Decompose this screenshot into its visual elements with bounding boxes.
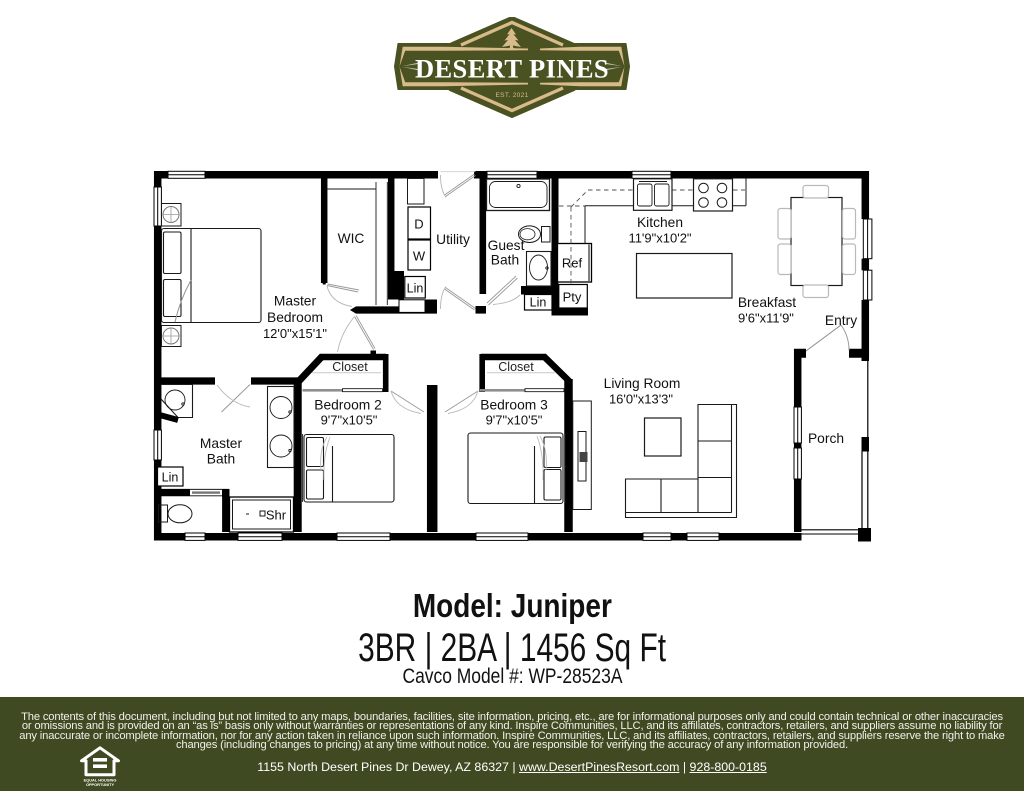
svg-text:11'9"x10'2": 11'9"x10'2": [628, 231, 691, 246]
svg-text:Closet: Closet: [332, 360, 368, 374]
svg-text:D: D: [414, 217, 423, 232]
svg-text:Lin: Lin: [407, 282, 424, 296]
svg-text:9'6"x11'9": 9'6"x11'9": [738, 311, 794, 326]
svg-text:Bedroom: Bedroom: [267, 310, 323, 325]
svg-text:Utility: Utility: [436, 232, 470, 247]
svg-text:EST. 2021: EST. 2021: [495, 92, 528, 99]
svg-text:Bath: Bath: [491, 253, 519, 268]
svg-text:DESERT PINES: DESERT PINES: [415, 54, 609, 84]
svg-text:WIC: WIC: [338, 231, 365, 246]
svg-text:Shr: Shr: [266, 508, 287, 523]
svg-text:Closet: Closet: [498, 360, 534, 374]
svg-text:Breakfast: Breakfast: [738, 295, 796, 310]
svg-text:Porch: Porch: [808, 431, 844, 446]
svg-text:Guest: Guest: [488, 238, 525, 253]
svg-text:Ref: Ref: [562, 256, 583, 271]
svg-text:9'7"x10'5": 9'7"x10'5": [321, 413, 378, 428]
svg-text:Bath: Bath: [207, 452, 235, 467]
svg-text:9'7"x10'5": 9'7"x10'5": [486, 413, 543, 428]
svg-text:Pty: Pty: [563, 290, 582, 305]
svg-text:Lin: Lin: [162, 471, 179, 485]
svg-text:12'0"x15'1": 12'0"x15'1": [263, 326, 327, 341]
svg-text:Master: Master: [274, 294, 317, 309]
svg-text:OPPORTUNITY: OPPORTUNITY: [86, 782, 115, 787]
svg-text:Kitchen: Kitchen: [637, 215, 683, 230]
svg-text:Entry: Entry: [825, 313, 857, 328]
svg-text:Living Room: Living Room: [604, 376, 681, 391]
svg-text:Master: Master: [200, 436, 243, 451]
svg-text:16'0"x13'3": 16'0"x13'3": [609, 392, 673, 407]
svg-text:W: W: [413, 249, 426, 264]
svg-text:Bedroom 3: Bedroom 3: [480, 398, 548, 413]
svg-text:Lin: Lin: [530, 296, 547, 310]
svg-text:Bedroom 2: Bedroom 2: [314, 398, 382, 413]
